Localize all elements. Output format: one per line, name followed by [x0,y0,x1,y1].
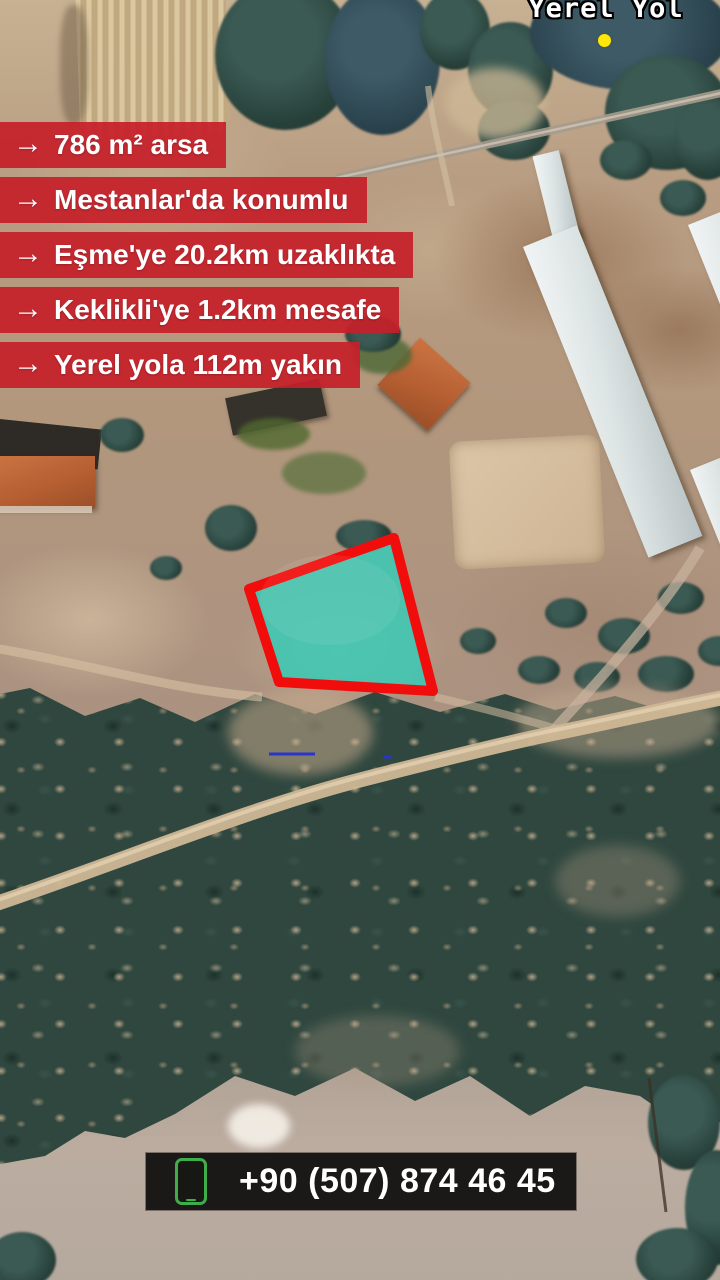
arrow-icon: → [13,347,43,380]
feature-banner: →786 m² arsa [0,122,226,168]
bush [660,180,706,216]
bush [205,505,257,551]
banner-label: Keklikli'ye 1.2km mesafe [54,294,381,325]
forest-clearing [228,690,373,775]
bush [336,520,392,552]
forest-clearing [515,686,720,758]
banner-label: Eşme'ye 20.2km uzaklıkta [54,239,395,270]
feature-banner: →Mestanlar'da konumlu [0,177,367,223]
phone-bar: +90 (507) 874 46 45 [146,1153,576,1210]
bush [598,618,650,654]
house-roof-orange [0,456,95,508]
field-streak [60,5,88,125]
road-label: Yerel Yol [520,0,692,24]
house-wall [0,506,92,513]
feature-banner: →Eşme'ye 20.2km uzaklıkta [0,232,413,278]
bush [100,418,144,452]
bush [150,556,182,580]
arrow-icon: → [13,127,43,160]
bush [600,140,652,180]
arrow-icon: → [13,182,43,215]
arrow-icon: → [13,292,43,325]
feature-banner: →Keklikli'ye 1.2km mesafe [0,287,399,333]
bush [518,656,560,684]
arrow-icon: → [13,237,43,270]
banner-label: Mestanlar'da konumlu [54,184,349,215]
feature-banners: →786 m² arsa →Mestanlar'da konumlu →Eşme… [0,122,413,397]
forest-clearing [295,1015,460,1087]
feature-banner: →Yerel yola 112m yakın [0,342,360,388]
farmland-rows [76,0,231,139]
field-clearing [449,434,605,570]
bright-patch [228,1104,290,1148]
phone-icon [175,1158,207,1205]
clearing-patch [445,68,545,138]
banner-label: Yerel yola 112m yakın [54,349,342,380]
vegetation-patch [282,452,366,494]
bush [658,582,704,614]
forest-clearing [555,845,680,917]
banner-label: 786 m² arsa [54,129,208,160]
phone-home-button [186,1199,196,1201]
bush [545,598,587,628]
phone-number: +90 (507) 874 46 45 [239,1162,556,1201]
vegetation-patch [238,418,310,450]
listing-image: Yerel Yol →786 m² arsa →Mestanlar'da kon… [0,0,720,1280]
poi-marker-dot [598,34,611,47]
bush [460,628,496,654]
